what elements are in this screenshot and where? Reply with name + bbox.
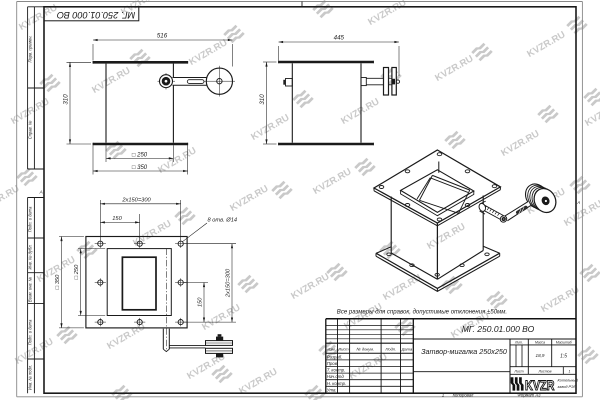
svg-text:Справ. №: Справ. №: [28, 120, 33, 139]
svg-text:Разраб.: Разраб.: [327, 354, 343, 359]
svg-text:□ 350: □ 350: [55, 274, 61, 290]
svg-text:Н. контр.: Н. контр.: [327, 381, 346, 386]
svg-text:Инв. № подл.: Инв. № подл.: [28, 365, 33, 390]
svg-text:1: 1: [569, 370, 571, 374]
svg-text:310: 310: [63, 94, 70, 105]
svg-text:Все размеры для справок, допус: Все размеры для справок, допустимые откл…: [337, 310, 507, 316]
svg-text:18,9: 18,9: [536, 353, 545, 358]
svg-text:Пров.: Пров.: [327, 361, 338, 366]
svg-text:Нач.отд: Нач.отд: [327, 374, 345, 379]
svg-text:Лит.: Лит.: [514, 340, 523, 344]
svg-text:Котельный: Котельный: [558, 379, 580, 383]
svg-text:445: 445: [334, 34, 345, 41]
svg-text:МГ. 250.01.000 ВО: МГ. 250.01.000 ВО: [462, 324, 535, 334]
svg-text:завод РЭП: завод РЭП: [557, 385, 577, 389]
svg-text:Масса: Масса: [535, 340, 545, 344]
svg-text:150: 150: [112, 216, 122, 222]
svg-text:А: А: [39, 190, 43, 195]
svg-text:1:5: 1:5: [560, 354, 567, 360]
svg-text:Лист: Лист: [337, 347, 349, 352]
svg-text:Формат А3: Формат А3: [518, 393, 542, 398]
svg-text:Лист: Лист: [513, 370, 523, 374]
svg-text:Изм.: Изм.: [327, 347, 336, 352]
svg-text:Утв.: Утв.: [327, 387, 337, 392]
svg-text:516: 516: [157, 33, 168, 40]
svg-text:150: 150: [198, 297, 204, 307]
svg-text:А: А: [576, 200, 580, 205]
svg-text:8 отв. Ø14: 8 отв. Ø14: [208, 218, 238, 224]
svg-text:Подп.: Подп.: [385, 347, 396, 352]
svg-text:Т. контр.: Т. контр.: [327, 368, 346, 373]
svg-text:Подп. и дата: Подп. и дата: [28, 206, 33, 232]
svg-text:□ 350: □ 350: [132, 165, 148, 171]
svg-text:Затвор-мигалка 250х250: Затвор-мигалка 250х250: [421, 347, 507, 356]
svg-text:Масштаб: Масштаб: [556, 340, 572, 344]
svg-text:Инв. № дубл.: Инв. № дубл.: [28, 244, 33, 269]
svg-text:Копировал: Копировал: [453, 393, 474, 398]
svg-text:МГ. 250.01.000 ВО: МГ. 250.01.000 ВО: [57, 10, 135, 20]
svg-text:1: 1: [442, 393, 444, 398]
svg-text:KVZR: KVZR: [525, 378, 555, 393]
svg-text:Листов: Листов: [537, 370, 551, 374]
svg-text:□ 250: □ 250: [74, 264, 80, 280]
svg-text:Подп. и дата: Подп. и дата: [28, 319, 33, 345]
svg-text:Перв. примен.: Перв. примен.: [28, 35, 33, 62]
svg-text:Взам. инв. №: Взам. инв. №: [28, 276, 33, 302]
svg-text:Дата: Дата: [401, 347, 413, 352]
svg-text:№ докум.: № докум.: [356, 347, 374, 352]
svg-text:2х150=300: 2х150=300: [121, 198, 151, 204]
svg-text:□ 250: □ 250: [132, 152, 148, 158]
svg-text:2х150=300: 2х150=300: [226, 268, 232, 298]
svg-text:310: 310: [259, 94, 266, 105]
